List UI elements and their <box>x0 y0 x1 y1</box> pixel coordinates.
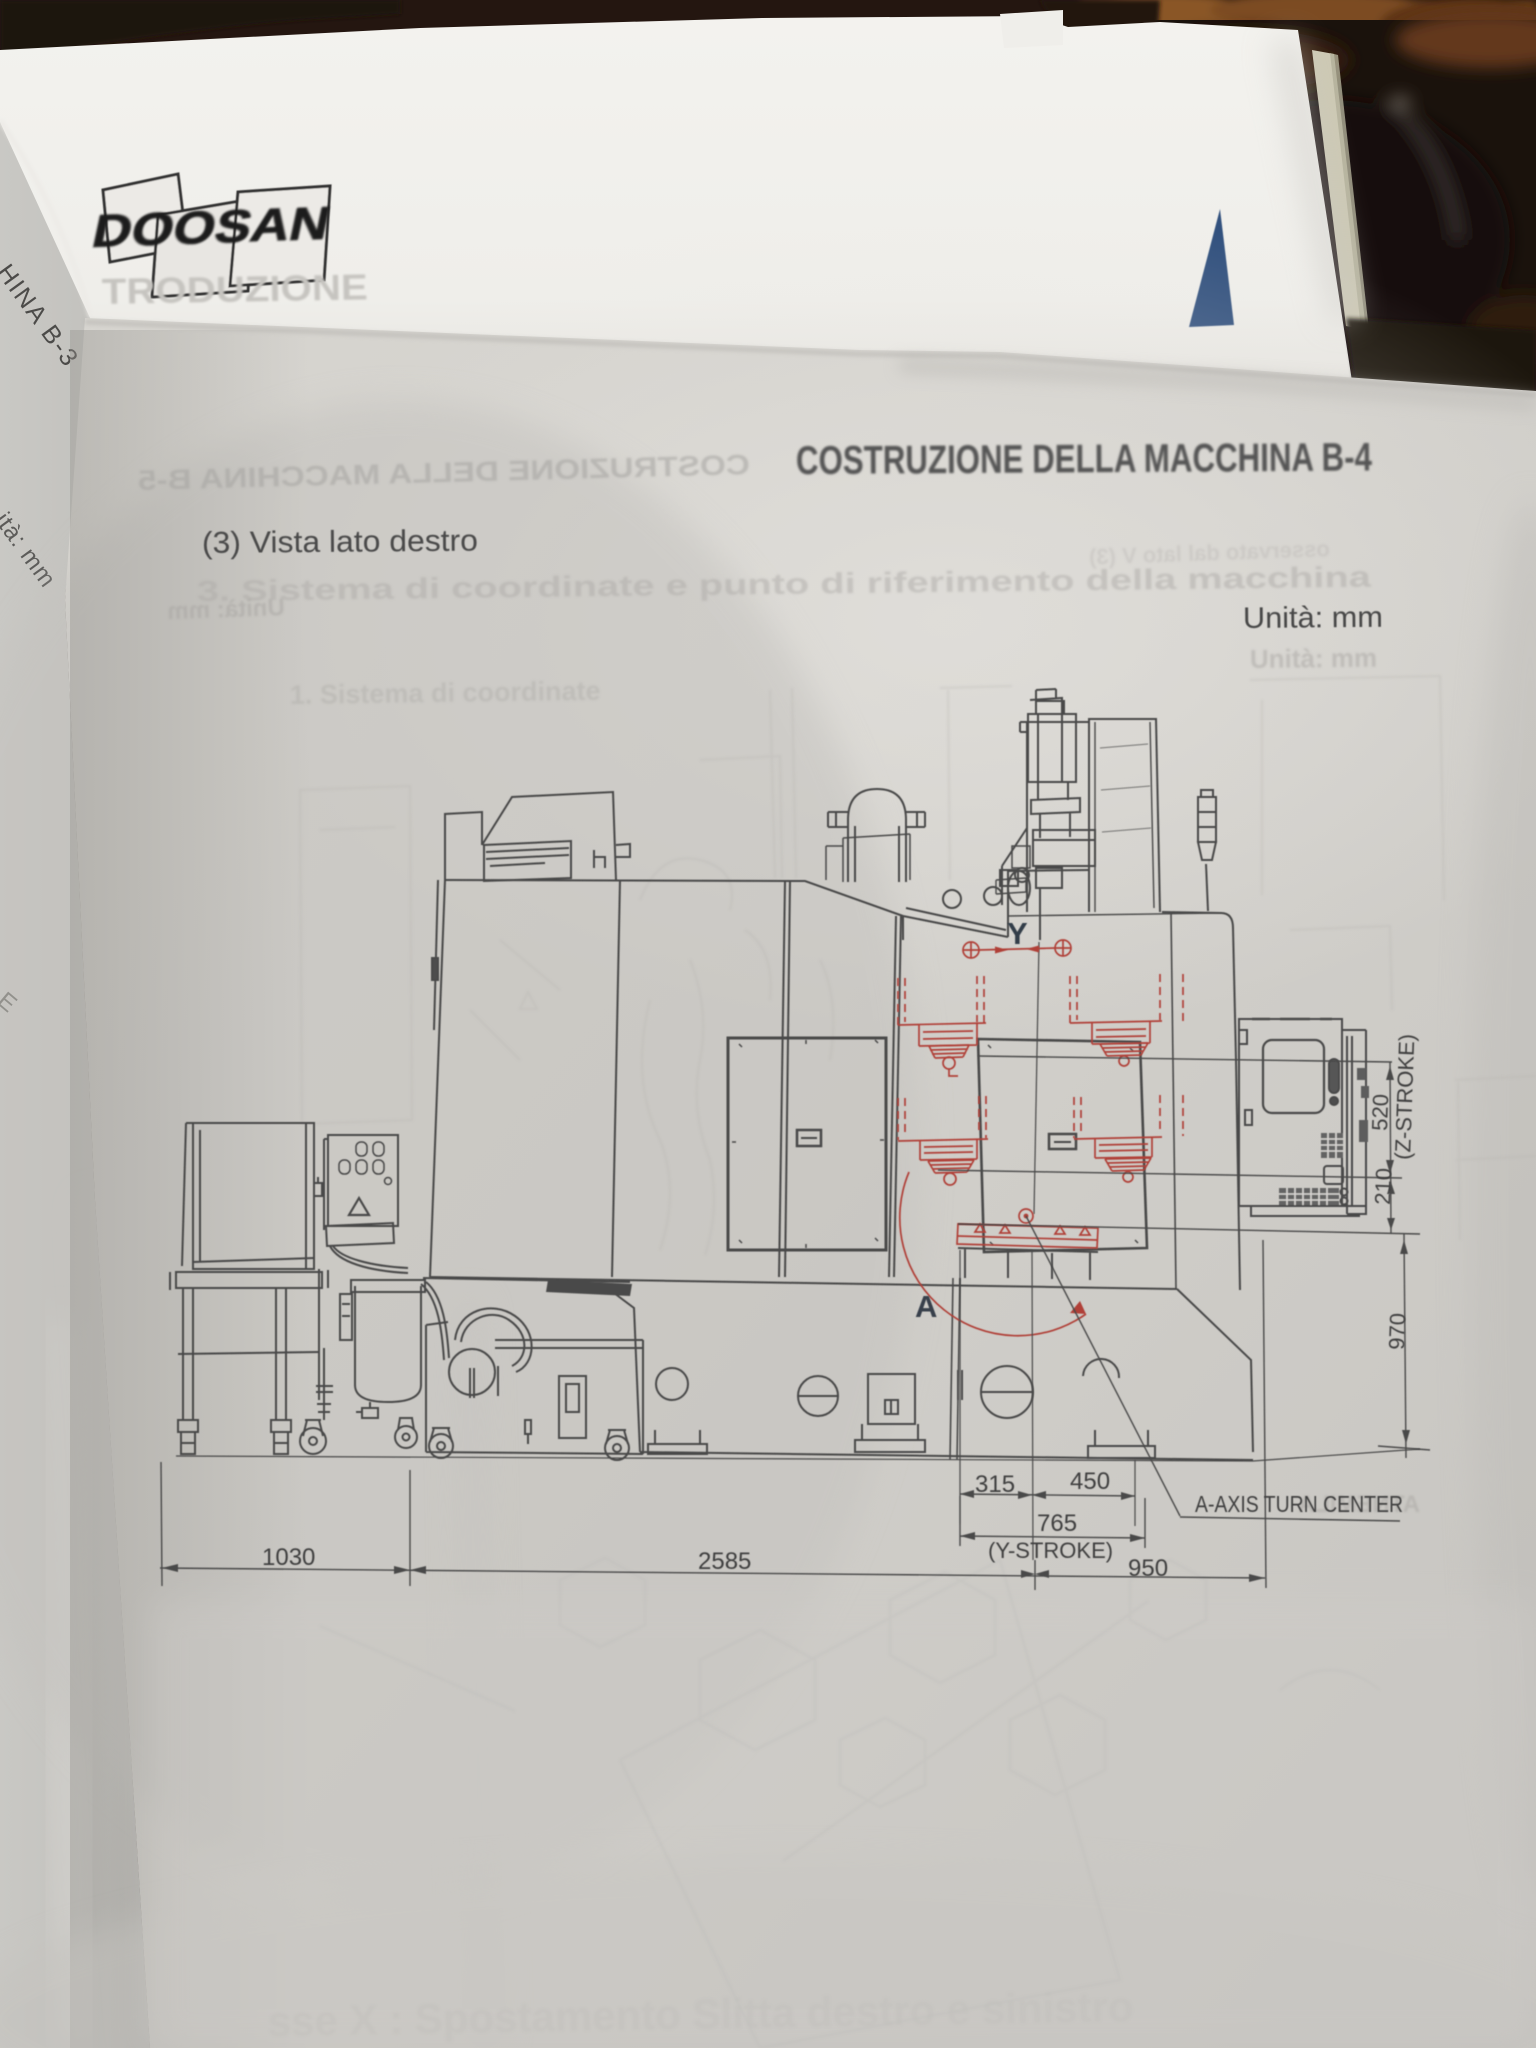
svg-text:520: 520 <box>1367 1094 1393 1132</box>
svg-text:A: A <box>915 1289 937 1324</box>
svg-text:315: 315 <box>975 1471 1015 1498</box>
svg-text:Unità: mm: Unità: mm <box>1243 601 1383 635</box>
svg-text:(3) Vista lato destro: (3) Vista lato destro <box>202 523 478 560</box>
svg-text:DOOSAN: DOOSAN <box>88 197 335 257</box>
svg-text:A-AXIS TURN CENTER: A-AXIS TURN CENTER <box>1195 1491 1403 1517</box>
svg-text:Unità: mm: Unità: mm <box>167 594 285 625</box>
svg-text:210: 210 <box>1370 1168 1396 1206</box>
svg-text:970: 970 <box>1384 1313 1410 1351</box>
svg-text:COSTRUZIONE DELLA MACCHINA B-4: COSTRUZIONE DELLA MACCHINA B-4 <box>796 435 1373 483</box>
svg-text:2585: 2585 <box>698 1548 751 1575</box>
svg-text:Y: Y <box>1007 916 1028 951</box>
svg-text:(Z-STROKE): (Z-STROKE) <box>1390 1033 1419 1160</box>
svg-text:TRODUZIONE: TRODUZIONE <box>101 266 368 312</box>
svg-text:950: 950 <box>1128 1555 1168 1582</box>
svg-text:765: 765 <box>1037 1510 1077 1537</box>
svg-text:Unità: mm: Unità: mm <box>1250 643 1377 674</box>
svg-text:(Y-STROKE): (Y-STROKE) <box>988 1538 1113 1563</box>
svg-text:450: 450 <box>1070 1468 1110 1495</box>
svg-text:1. Sistema di coordinate: 1. Sistema di coordinate <box>290 676 601 710</box>
svg-text:1030: 1030 <box>262 1544 315 1571</box>
